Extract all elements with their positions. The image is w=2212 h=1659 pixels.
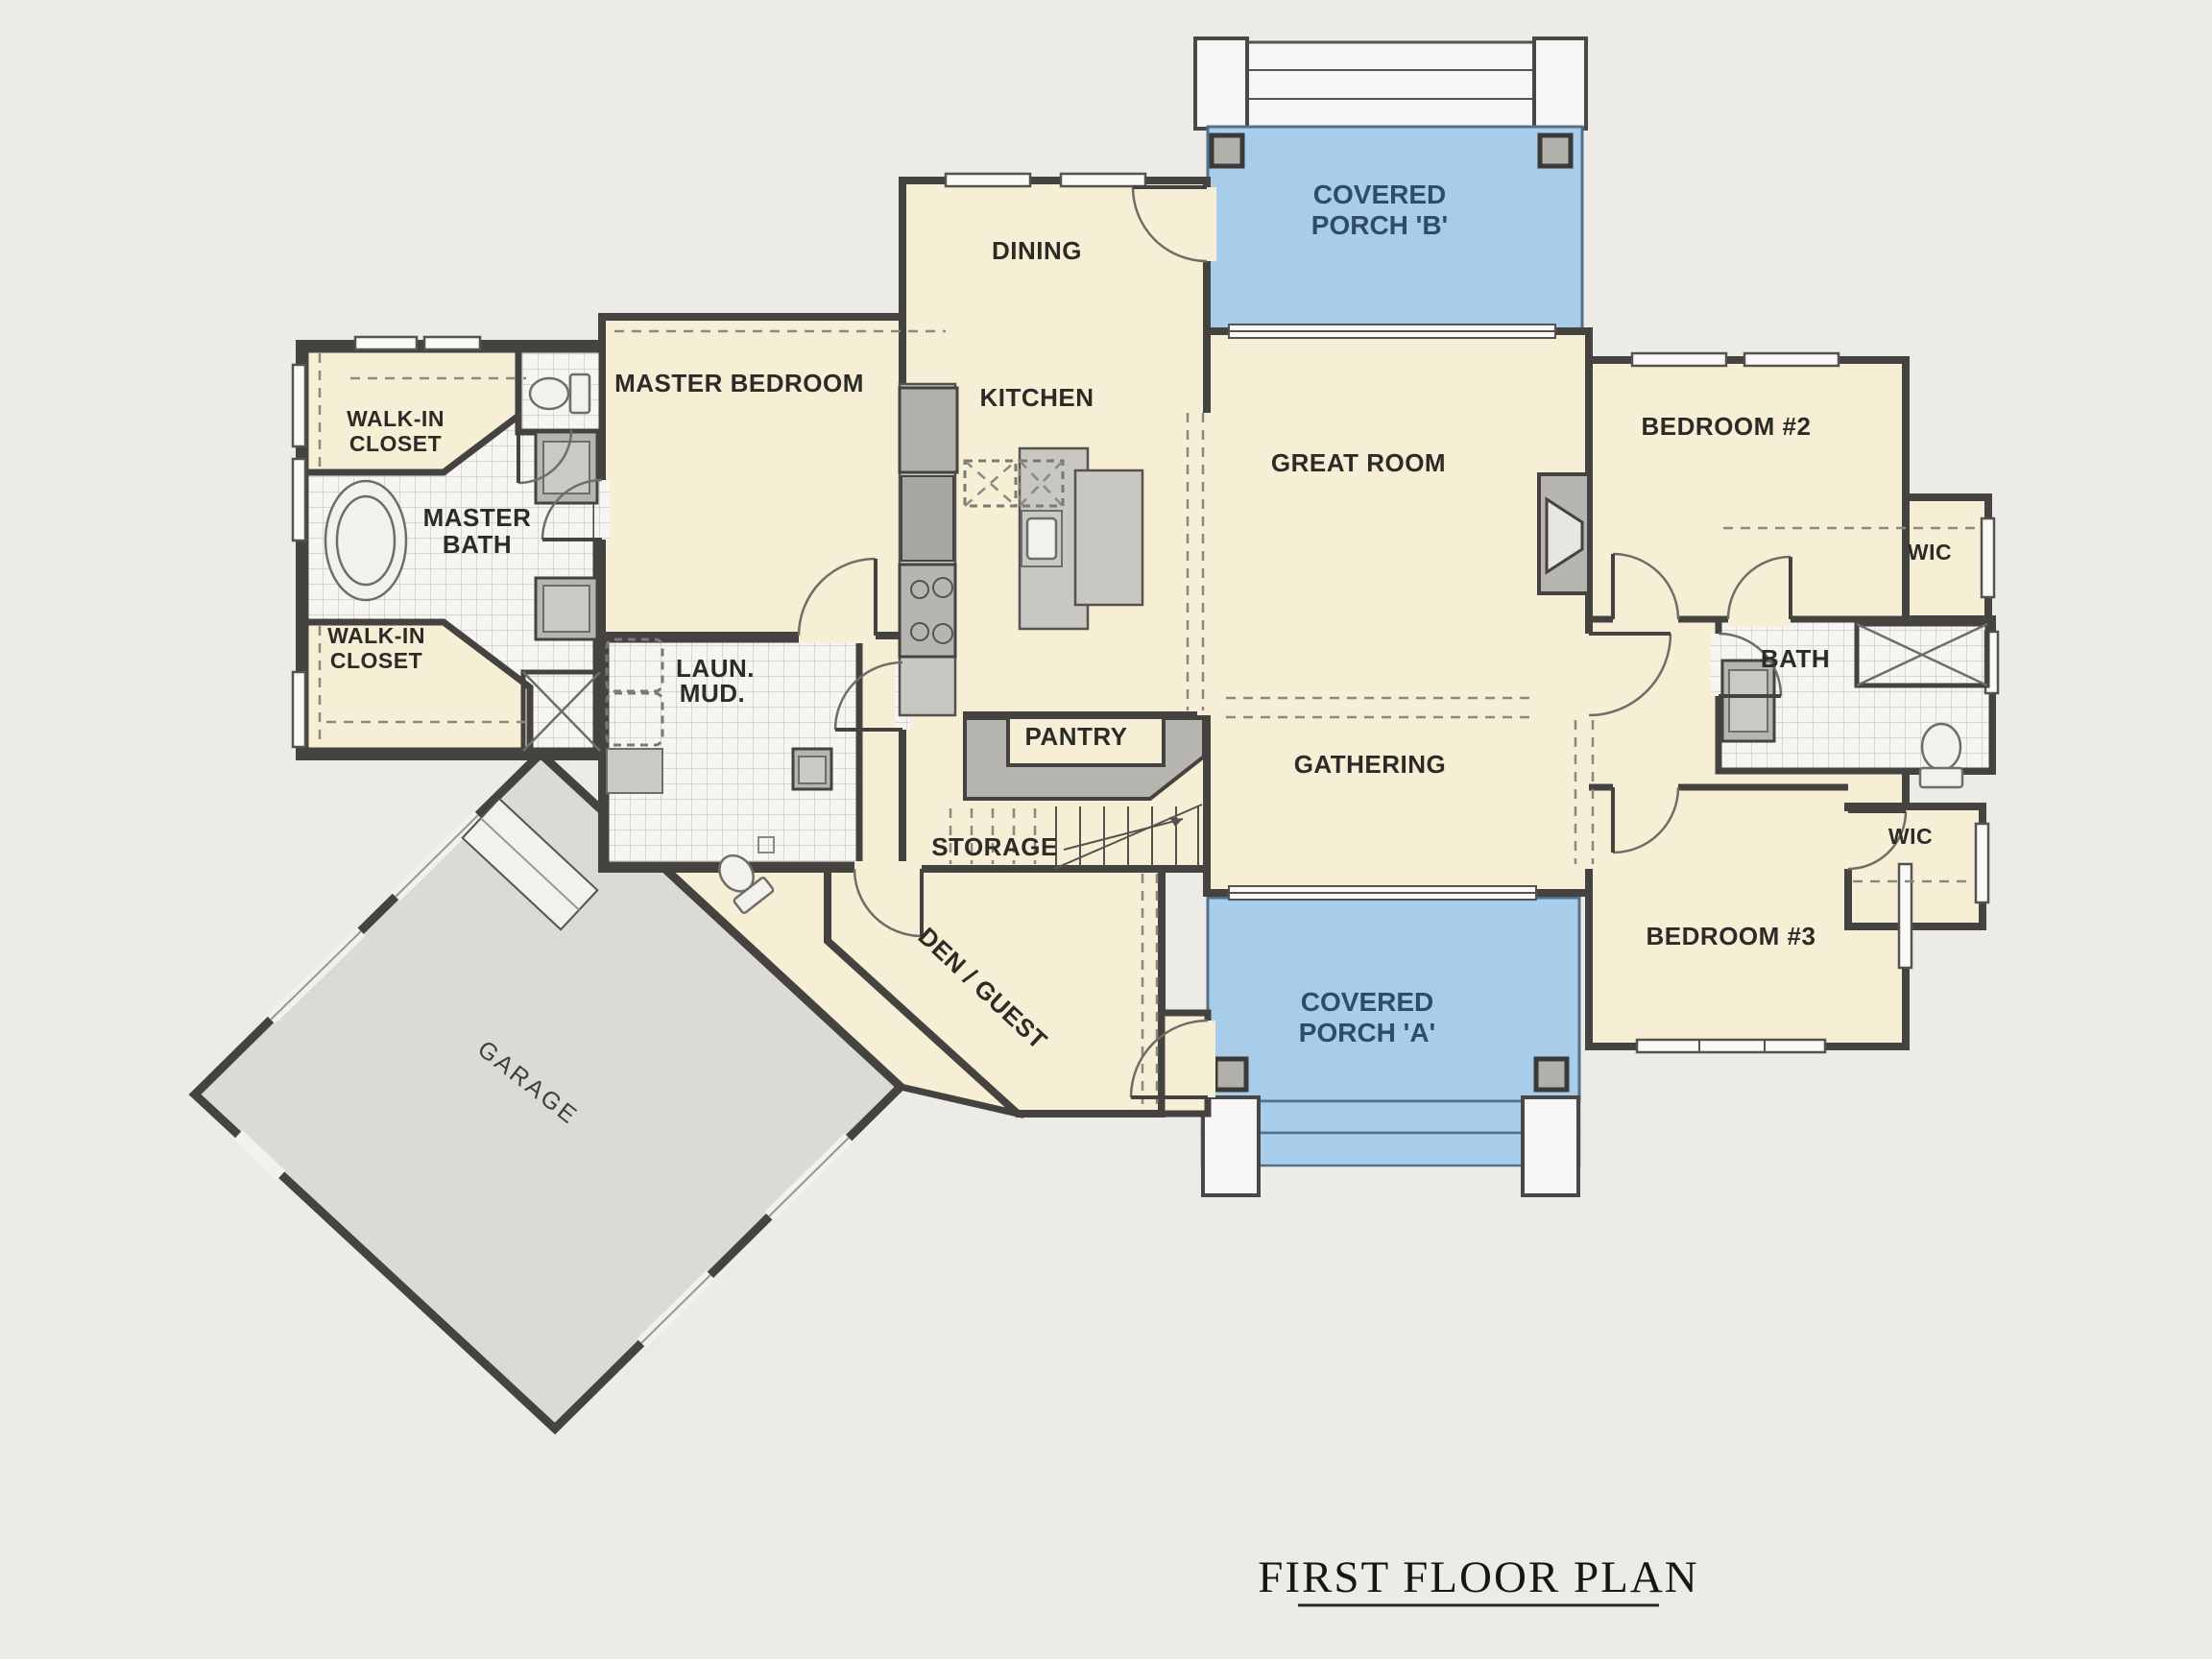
porch-b-column	[1534, 38, 1586, 129]
plan-title-text: FIRST FLOOR PLAN	[1258, 1552, 1698, 1602]
vanity-sink	[1729, 670, 1767, 732]
powder-sink-basin	[799, 757, 826, 783]
window	[1632, 353, 1726, 366]
window	[1744, 353, 1839, 366]
dining-label: DINING	[992, 236, 1082, 265]
laundry-counter	[607, 749, 662, 793]
master-bedroom-label: MASTER BEDROOM	[614, 369, 864, 397]
floor-plan-page: COVERED PORCH 'B' DINING MASTER BEDROOM …	[0, 0, 2212, 1659]
window	[293, 672, 305, 747]
wic-lower-label: WIC	[1888, 824, 1933, 849]
plan-title: FIRST FLOOR PLAN	[1258, 1552, 1698, 1605]
storage-label: STORAGE	[931, 832, 1058, 861]
porch-b-steps	[1243, 42, 1534, 127]
master-bath-label-1: MASTER	[423, 503, 532, 532]
opening-kitchen-greatroom	[1197, 413, 1214, 715]
opening-wic-lower-door	[1840, 811, 1856, 869]
vanity-sink	[543, 586, 589, 632]
floor-plan-canvas: COVERED PORCH 'B' DINING MASTER BEDROOM …	[0, 0, 2212, 1659]
porch-a-column	[1523, 1097, 1578, 1195]
porch-b-label-1: COVERED	[1313, 180, 1446, 209]
walk-in-closet-lower-label-2: CLOSET	[330, 648, 422, 673]
window	[1899, 864, 1911, 968]
porch-a-column	[1203, 1097, 1259, 1195]
fireplace-icon	[1539, 474, 1589, 593]
great-room-label: GREAT ROOM	[1271, 448, 1446, 477]
toilet-icon	[530, 378, 568, 409]
pantry-label: PANTRY	[1025, 722, 1128, 751]
porch-a-label-1: COVERED	[1301, 987, 1433, 1017]
window	[355, 337, 417, 349]
walk-in-closet-upper-label-2: CLOSET	[349, 431, 442, 456]
refrigerator-icon	[900, 388, 957, 472]
wic-upper-label: WIC	[1908, 540, 1952, 565]
island-bar-counter	[1075, 470, 1142, 605]
opening-greatroom-hall	[1579, 634, 1599, 715]
kitchen-label: KITCHEN	[979, 383, 1094, 412]
great-room-block	[1207, 331, 1589, 893]
vanity-sink	[543, 442, 589, 493]
island-sink-basin	[1027, 518, 1056, 559]
window	[424, 337, 480, 349]
toilet-tank-icon	[1920, 768, 1962, 787]
porch-b-label-2: PORCH 'B'	[1311, 210, 1448, 240]
porch-b-post	[1212, 135, 1242, 166]
opening-master-bedroom-door	[799, 628, 876, 643]
wall-oven-icon	[902, 476, 953, 561]
porch-b-column	[1195, 38, 1247, 129]
walk-in-closet-lower-label-1: WALK-IN	[327, 623, 425, 648]
toilet-icon	[1922, 724, 1960, 770]
master-bath-label-2: BATH	[443, 530, 512, 559]
walk-in-closet-upper-label-1: WALK-IN	[347, 406, 445, 431]
opening-front-door	[1200, 1021, 1215, 1097]
opening-gathering-hall	[1579, 715, 1599, 869]
bedroom-3-label: BEDROOM #3	[1647, 922, 1816, 950]
window	[1637, 1040, 1825, 1052]
porch-a-label-2: PORCH 'A'	[1299, 1018, 1435, 1047]
gathering-label: GATHERING	[1294, 750, 1447, 779]
bath-label: BATH	[1761, 644, 1830, 673]
window	[293, 459, 305, 541]
window	[1061, 174, 1145, 186]
bedroom-2-label: BEDROOM #2	[1642, 412, 1812, 441]
laundry-mud-label-2: MUD.	[680, 679, 745, 708]
window	[293, 365, 305, 446]
porch-b-post	[1540, 135, 1571, 166]
porch-a-post	[1215, 1059, 1246, 1090]
window	[1982, 518, 1994, 597]
opening-wic-upper-door	[1728, 612, 1791, 627]
opening-dining-porch-door	[1199, 187, 1216, 261]
window	[1976, 824, 1988, 902]
toilet-tank-icon	[570, 374, 589, 413]
window	[946, 174, 1030, 186]
opening-den-door	[854, 861, 922, 877]
porch-a-post	[1536, 1059, 1567, 1090]
